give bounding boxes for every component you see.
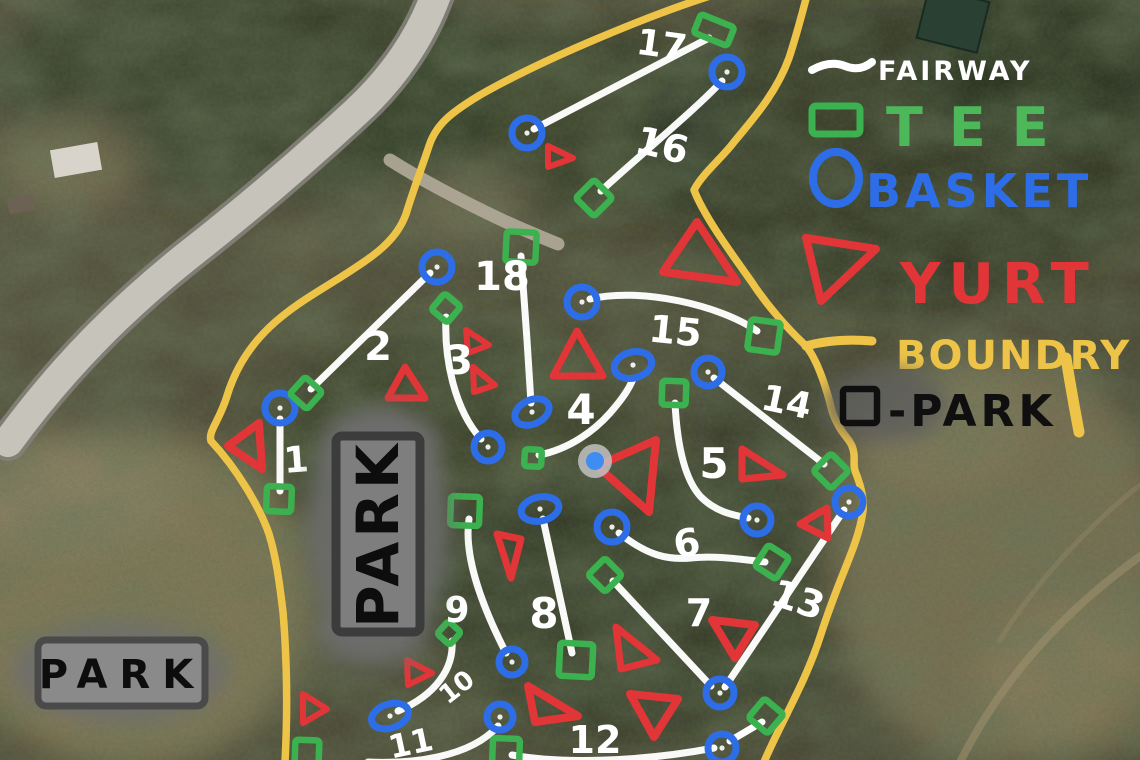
basket-center-dot	[754, 517, 759, 522]
basket-center-dot	[609, 524, 614, 529]
hole-number-4: 4	[566, 385, 595, 434]
legend-basket-label: BASKET	[866, 164, 1092, 218]
basket-center-dot	[529, 409, 534, 414]
basket-center-dot	[846, 499, 851, 504]
hole-number-18: 18	[474, 254, 530, 300]
hole-number-3: 3	[445, 338, 473, 384]
hole-number-8: 8	[529, 589, 558, 638]
basket-center-dot	[509, 659, 514, 664]
basket-center-dot	[537, 506, 542, 511]
location-dot	[586, 452, 604, 470]
basket-center-dot	[387, 713, 392, 718]
basket-center-dot	[277, 405, 282, 410]
park-sign-horizontal-text: PARK	[39, 652, 205, 698]
hole-number-9: 9	[444, 590, 469, 631]
park-sign-horizontal: PARK	[12, 622, 228, 722]
basket-center-dot	[705, 369, 710, 374]
hole-number-15: 15	[647, 306, 704, 355]
park-sign-vertical: PARK	[306, 406, 450, 668]
hole-number-7: 7	[686, 591, 712, 635]
park-sign-vertical-text: PARK	[344, 440, 412, 628]
basket-center-dot	[717, 690, 722, 695]
legend-tee-label: TEE	[886, 96, 1075, 159]
legend-fairway-label: FAIRWAY	[878, 56, 1033, 87]
hole-number-12: 12	[569, 718, 622, 760]
legend-park-label: -PARK	[888, 386, 1057, 437]
basket-center-dot	[579, 299, 584, 304]
basket-center-dot	[724, 69, 729, 74]
basket-center-dot	[485, 444, 490, 449]
basket-center-dot	[434, 264, 439, 269]
hole-number-1: 1	[282, 439, 310, 482]
legend-yurt-label: YURT	[899, 252, 1097, 317]
course-map-screenshot: 123456789101112131415161718 PARK PARK FA…	[0, 0, 1140, 760]
basket-center-dot	[719, 745, 724, 750]
legend-boundary-label: BOUNDRY	[896, 333, 1131, 379]
basket-center-dot	[524, 130, 529, 135]
hole-number-17: 17	[634, 22, 689, 70]
legend-fairway-line	[812, 62, 872, 70]
basket-center-dot	[497, 714, 502, 719]
current-location-marker	[578, 444, 612, 478]
basket-center-dot	[630, 362, 635, 367]
hole-number-5: 5	[699, 439, 728, 488]
hole-number-2: 2	[364, 324, 392, 370]
course-map: 123456789101112131415161718 PARK PARK FA…	[0, 0, 1140, 760]
